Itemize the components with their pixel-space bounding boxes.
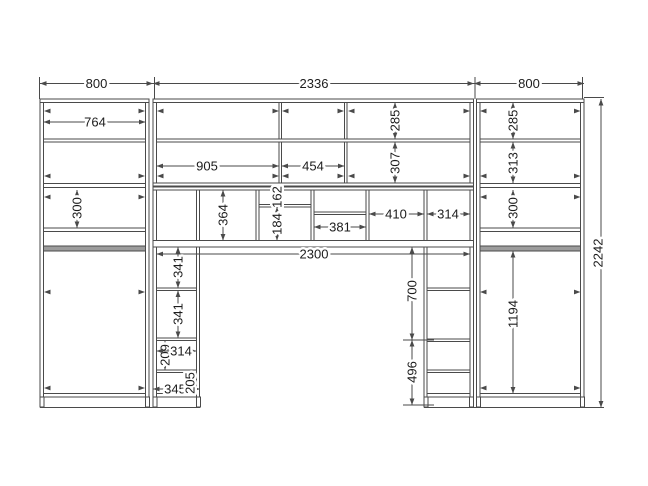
dimension-label-205: 205 [183,372,198,394]
dimension-arrow [410,399,415,406]
panel-cubby-divider-1 [256,188,259,241]
panel-middle-left-wall [153,99,157,397]
furniture-elevation-drawing: 8002336800764905454285307285313300300364… [0,0,648,486]
dimension-label-2336: 2336 [300,76,329,91]
dimension-label-314: 314 [170,344,192,359]
dimension-arrow [393,133,398,140]
wall-arrow [574,386,581,391]
dimension-arrow [393,177,398,184]
dimension-arrow [511,177,516,184]
leg [470,397,474,407]
dimension-label-800: 800 [86,76,108,91]
wall-arrow [348,174,355,179]
dimension-arrow [393,103,398,110]
wall-arrow [480,290,487,295]
panel-right-column-shelf-3 [427,370,470,373]
dimension-label-285: 285 [506,110,521,132]
dimension-arrow [157,252,164,257]
dimension-arrow [511,133,516,140]
panel-right-shelf-a [480,139,581,142]
wall-arrow [338,109,345,114]
dimension-arrow [176,291,181,298]
dimension-label-2300: 2300 [300,247,329,262]
wall-arrow [139,109,146,114]
dimension-arrow [338,164,345,169]
panel-upper-divider-a [279,102,282,184]
panel-right-shelf-b [480,184,581,188]
wall-arrow [44,195,51,200]
dimension-label-300: 300 [506,197,521,219]
panel-cubby-shelf-381 [314,212,366,215]
dimension-label-764: 764 [84,115,106,130]
wall-arrow [273,174,280,179]
dimension-label-700: 700 [405,280,420,302]
panel-middle-bottom-panel [153,183,474,186]
wall-arrow [139,386,146,391]
dimension-arrow [176,332,181,339]
dimension-label-314: 314 [437,207,459,222]
dimension-arrow [599,401,604,408]
dimension-arrow [511,142,516,149]
dimension-arrow [314,225,321,230]
wall-arrow [139,174,146,179]
dimension-label-313: 313 [506,152,521,174]
panel-left-cabinet-right-wall [146,99,150,397]
dimension-arrow [511,222,516,229]
technical-drawing-canvas: 8002336800764905454285307285313300300364… [0,0,648,486]
dimension-arrow [393,142,398,149]
panel-right-column-bottom [427,394,470,398]
dimension-arrow [75,222,80,229]
wall-arrow [464,109,471,114]
dimension-label-410: 410 [385,207,407,222]
dimension-arrow [75,190,80,197]
dimension-label-2242: 2242 [591,239,606,268]
dimension-arrow [418,212,425,217]
panel-left-column-shelf-1 [157,288,197,291]
dimension-label-496: 496 [405,361,420,383]
wall-arrow [480,195,487,200]
dimension-label-454: 454 [302,159,324,174]
dimension-label-905: 905 [196,159,218,174]
dimension-arrow [468,81,475,86]
wall-arrow [480,386,487,391]
dimension-arrow [44,120,51,125]
wall-arrow [139,195,146,200]
dimension-arrow [176,282,181,289]
wall-arrow [44,174,51,179]
dimension-arrow [139,120,146,125]
wall-arrow [157,174,164,179]
dimension-arrow [369,212,376,217]
panel-middle-top [153,99,474,103]
dimension-arrow [157,164,164,169]
panel-cubby-shelf-162-184 [259,205,311,208]
panel-left-cabinet-top [40,99,149,103]
dimension-label-162: 162 [270,186,285,208]
wall-arrow [574,290,581,295]
leg [477,397,481,407]
wall-arrow [139,290,146,295]
panel-right-cabinet-right-wall [581,99,585,397]
wall-arrow [480,174,487,179]
wall-arrow [44,386,51,391]
dimension-arrow [410,247,415,254]
leg [153,397,157,407]
wall-arrow [574,109,581,114]
dimension-arrow [410,334,415,341]
wall-arrow [282,109,289,114]
leg [197,397,201,407]
panel-right-cabinet-bottom [480,394,581,398]
dimension-label-800: 800 [518,76,540,91]
dimension-arrow [221,234,226,241]
panel-left-column-shelf-2 [157,338,197,341]
wall-arrow [44,109,51,114]
dimension-arrow [464,252,471,257]
wall-arrow [480,109,487,114]
wall-arrow [464,174,471,179]
wall-arrow [574,195,581,200]
dimension-arrow [511,190,516,197]
dimension-arrow [511,103,516,110]
leg [40,397,44,407]
dimension-arrow [360,225,367,230]
dimension-arrow [40,81,47,86]
dimension-label-285: 285 [388,110,403,132]
panel-middle-right-wall [470,99,474,397]
panel-left-cabinet-bottom [44,394,146,398]
wall-arrow [574,174,581,179]
dimension-arrow [153,81,160,86]
dimension-label-364: 364 [216,204,231,226]
panel-upper-divider-b [345,102,348,184]
panel-left-shelf-a [44,139,146,142]
dimension-arrow [599,99,604,106]
panel-right-cabinet-top [477,99,585,103]
panel-left-column-right-wall [197,188,200,397]
wall-arrow [44,290,51,295]
right-hanging-rod [480,246,581,251]
dimension-arrow [147,81,154,86]
panel-left-shelf-b [44,184,146,188]
leg [146,397,150,407]
wall-arrow [157,109,164,114]
dimension-label-307: 307 [388,152,403,174]
wall-arrow [282,174,289,179]
dimension-arrow [427,212,434,217]
dimension-arrow [578,81,585,86]
dimension-label-184: 184 [270,213,285,235]
dimension-arrow [273,164,280,169]
dimension-arrow [511,387,516,394]
left-hanging-rod [44,246,146,251]
dimension-arrow [176,247,181,254]
panel-left-cabinet-left-wall [40,99,44,397]
wall-arrow [273,109,280,114]
panel-right-column-shelf-1 [427,288,470,291]
dimension-label-341: 341 [171,256,186,278]
dimension-label-341: 341 [171,303,186,325]
dimension-arrow [464,212,471,217]
dimension-label-381: 381 [329,220,351,235]
dimension-arrow [221,190,226,197]
dimension-arrow [282,164,289,169]
panel-cubby-top-panel [153,187,474,190]
panel-right-column-left-wall [424,188,427,397]
leg [581,397,585,407]
dimension-label-300: 300 [70,197,85,219]
panel-left-shelf-c [44,228,146,232]
panel-left-column-shelf-3 [157,370,197,373]
dimension-label-1194: 1194 [506,300,521,328]
wall-arrow [348,109,355,114]
panel-middle-shelf-a [157,139,471,142]
dimension-arrow [511,251,516,258]
wall-arrow [338,174,345,179]
panel-right-cabinet-left-wall [477,99,481,397]
panel-right-shelf-c [480,228,581,232]
dimension-arrow [410,340,415,347]
